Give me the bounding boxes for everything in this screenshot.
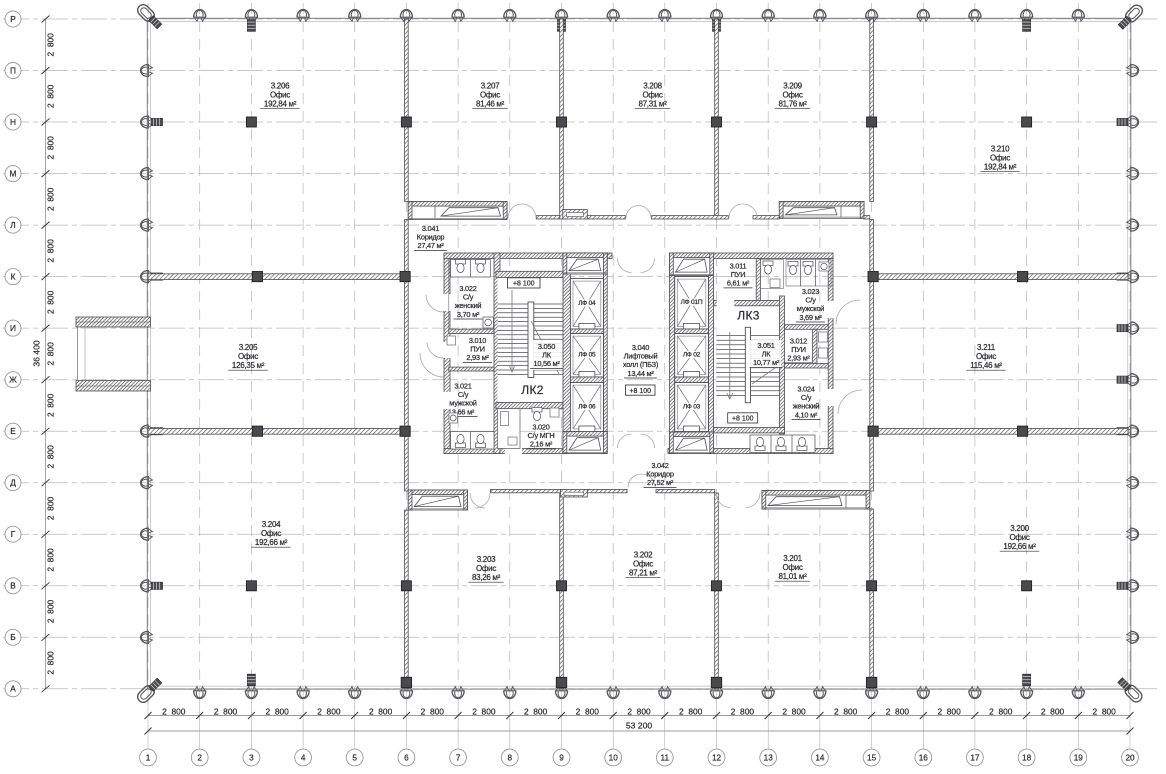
svg-text:192,66 м²: 192,66 м²: [1003, 542, 1036, 551]
svg-text:Офис: Офис: [270, 91, 290, 100]
svg-text:2: 2: [197, 753, 202, 762]
svg-text:Г: Г: [11, 529, 16, 539]
svg-text:А: А: [10, 684, 16, 694]
svg-text:192,84 м²: 192,84 м²: [984, 163, 1017, 172]
svg-text:81,76 м²: 81,76 м²: [778, 100, 807, 109]
svg-text:ЛФ 02: ЛФ 02: [683, 352, 701, 359]
svg-text:Л: Л: [10, 220, 15, 230]
svg-text:16: 16: [919, 753, 929, 762]
svg-text:18: 18: [1022, 753, 1032, 762]
svg-text:83,26 м²: 83,26 м²: [472, 573, 501, 582]
svg-text:87,21 м²: 87,21 м²: [629, 569, 658, 578]
svg-text:7: 7: [456, 753, 461, 762]
svg-text:3: 3: [249, 753, 254, 762]
svg-text:2,16 м²: 2,16 м²: [530, 440, 553, 449]
svg-text:Офис: Офис: [476, 564, 496, 573]
svg-text:17: 17: [970, 753, 980, 762]
svg-text:Офис: Офис: [990, 154, 1010, 163]
svg-text:81,01 м²: 81,01 м²: [778, 572, 807, 581]
svg-text:2 800: 2 800: [46, 84, 56, 108]
svg-text:Офис: Офис: [238, 352, 258, 361]
svg-text:115,46 м²: 115,46 м²: [970, 361, 1002, 370]
svg-text:2 800: 2 800: [627, 707, 651, 717]
svg-text:3,70 м²: 3,70 м²: [457, 310, 480, 319]
svg-text:М: М: [10, 169, 17, 179]
svg-text:27,52 м²: 27,52 м²: [647, 478, 674, 487]
svg-text:2 800: 2 800: [214, 707, 238, 717]
svg-text:3.201: 3.201: [783, 554, 802, 563]
svg-text:2 800: 2 800: [1093, 707, 1117, 717]
svg-text:2 800: 2 800: [266, 707, 290, 717]
svg-text:126,35 м²: 126,35 м²: [232, 361, 265, 370]
svg-text:2 800: 2 800: [317, 707, 341, 717]
svg-text:2 800: 2 800: [834, 707, 858, 717]
svg-text:13: 13: [764, 753, 774, 762]
svg-text:10,56 м²: 10,56 м²: [533, 359, 560, 368]
svg-text:3.200: 3.200: [1010, 524, 1029, 533]
svg-text:Офис: Офис: [782, 91, 802, 100]
svg-text:Ж: Ж: [9, 375, 17, 385]
svg-text:192,84 м²: 192,84 м²: [264, 100, 297, 109]
svg-text:2 800: 2 800: [46, 497, 56, 521]
svg-text:3.207: 3.207: [481, 82, 500, 91]
svg-text:+8 100: +8 100: [513, 281, 535, 288]
svg-text:192,66 м²: 192,66 м²: [255, 538, 288, 547]
svg-text:Е: Е: [10, 426, 16, 436]
svg-text:6,61 м²: 6,61 м²: [727, 279, 750, 288]
svg-text:Н: Н: [10, 117, 16, 127]
svg-text:2 800: 2 800: [46, 342, 56, 366]
svg-text:Офис: Офис: [633, 560, 653, 569]
svg-text:6: 6: [404, 753, 409, 762]
svg-text:Д: Д: [10, 478, 16, 488]
svg-text:К: К: [11, 272, 16, 282]
svg-text:3.204: 3.204: [262, 520, 281, 529]
svg-text:ЛФ 03: ЛФ 03: [683, 404, 701, 411]
svg-text:3.209: 3.209: [783, 82, 802, 91]
svg-text:11: 11: [661, 753, 670, 762]
svg-text:3.203: 3.203: [477, 555, 496, 564]
svg-text:2 800: 2 800: [1041, 707, 1065, 717]
svg-text:Офис: Офис: [261, 529, 281, 538]
svg-text:2 800: 2 800: [886, 707, 910, 717]
svg-text:ЛФ 06: ЛФ 06: [578, 404, 596, 411]
svg-text:3.208: 3.208: [643, 82, 662, 91]
svg-text:2 800: 2 800: [731, 707, 755, 717]
svg-text:+8 100: +8 100: [732, 416, 754, 423]
svg-text:15: 15: [867, 753, 877, 762]
svg-text:+8 100: +8 100: [629, 388, 651, 395]
svg-text:3.205: 3.205: [239, 343, 258, 352]
svg-text:27,47 м²: 27,47 м²: [417, 241, 444, 250]
svg-text:2 800: 2 800: [46, 445, 56, 469]
svg-text:53 200: 53 200: [626, 720, 653, 730]
svg-text:2 800: 2 800: [576, 707, 600, 717]
svg-text:3.211: 3.211: [977, 343, 996, 352]
svg-text:20: 20: [1125, 753, 1135, 762]
svg-text:2 800: 2 800: [46, 33, 56, 57]
svg-text:2 800: 2 800: [937, 707, 961, 717]
svg-text:1: 1: [146, 753, 151, 762]
svg-text:2 800: 2 800: [679, 707, 703, 717]
svg-text:ЛК2: ЛК2: [521, 383, 543, 397]
svg-text:10: 10: [609, 753, 619, 762]
svg-text:3.202: 3.202: [634, 551, 653, 560]
svg-text:5: 5: [352, 753, 357, 762]
svg-text:2 800: 2 800: [46, 290, 56, 314]
svg-text:2 800: 2 800: [782, 707, 806, 717]
svg-text:12: 12: [712, 753, 722, 762]
svg-text:Р: Р: [10, 14, 16, 24]
svg-text:2 800: 2 800: [421, 707, 445, 717]
svg-text:2 800: 2 800: [46, 239, 56, 263]
svg-text:8: 8: [508, 753, 513, 762]
svg-text:4,10 м²: 4,10 м²: [795, 410, 818, 419]
svg-text:2 800: 2 800: [162, 707, 186, 717]
svg-text:ЛК3: ЛК3: [737, 309, 759, 323]
svg-text:3,69 м²: 3,69 м²: [799, 313, 822, 322]
svg-text:Офис: Офис: [1009, 533, 1029, 542]
svg-text:ЛФ 04: ЛФ 04: [578, 300, 596, 307]
svg-text:2 800: 2 800: [472, 707, 496, 717]
svg-text:36 400: 36 400: [32, 340, 42, 367]
svg-text:10,77 м²: 10,77 м²: [753, 358, 780, 367]
svg-text:Офис: Офис: [642, 91, 662, 100]
svg-text:19: 19: [1074, 753, 1084, 762]
svg-text:2 800: 2 800: [46, 136, 56, 160]
svg-text:2,93 м²: 2,93 м²: [787, 354, 810, 363]
svg-text:81,46 м²: 81,46 м²: [476, 100, 505, 109]
svg-text:3.210: 3.210: [991, 145, 1010, 154]
svg-text:2,93 м²: 2,93 м²: [466, 353, 489, 362]
svg-text:2 800: 2 800: [46, 393, 56, 417]
svg-text:14: 14: [815, 753, 825, 762]
svg-text:2 800: 2 800: [46, 600, 56, 624]
svg-text:9: 9: [559, 753, 564, 762]
svg-text:2 800: 2 800: [989, 707, 1013, 717]
svg-text:В: В: [10, 581, 16, 591]
svg-text:Офис: Офис: [782, 563, 802, 572]
svg-text:2 800: 2 800: [524, 707, 548, 717]
svg-text:13,44 м²: 13,44 м²: [627, 369, 654, 378]
svg-text:87,31 м²: 87,31 м²: [638, 100, 667, 109]
svg-text:2 800: 2 800: [46, 651, 56, 675]
svg-text:2 800: 2 800: [46, 548, 56, 572]
svg-text:3.206: 3.206: [271, 82, 290, 91]
svg-text:ЛФ 05: ЛФ 05: [578, 352, 596, 359]
svg-text:2 800: 2 800: [46, 187, 56, 211]
svg-text:4: 4: [301, 753, 306, 762]
svg-text:ЛФ 01П: ЛФ 01П: [681, 299, 703, 306]
svg-text:И: И: [10, 323, 16, 333]
svg-text:Офис: Офис: [976, 352, 996, 361]
svg-text:Б: Б: [10, 632, 16, 642]
svg-text:Офис: Офис: [480, 91, 500, 100]
svg-text:П: П: [10, 65, 16, 75]
svg-text:2 800: 2 800: [369, 707, 393, 717]
